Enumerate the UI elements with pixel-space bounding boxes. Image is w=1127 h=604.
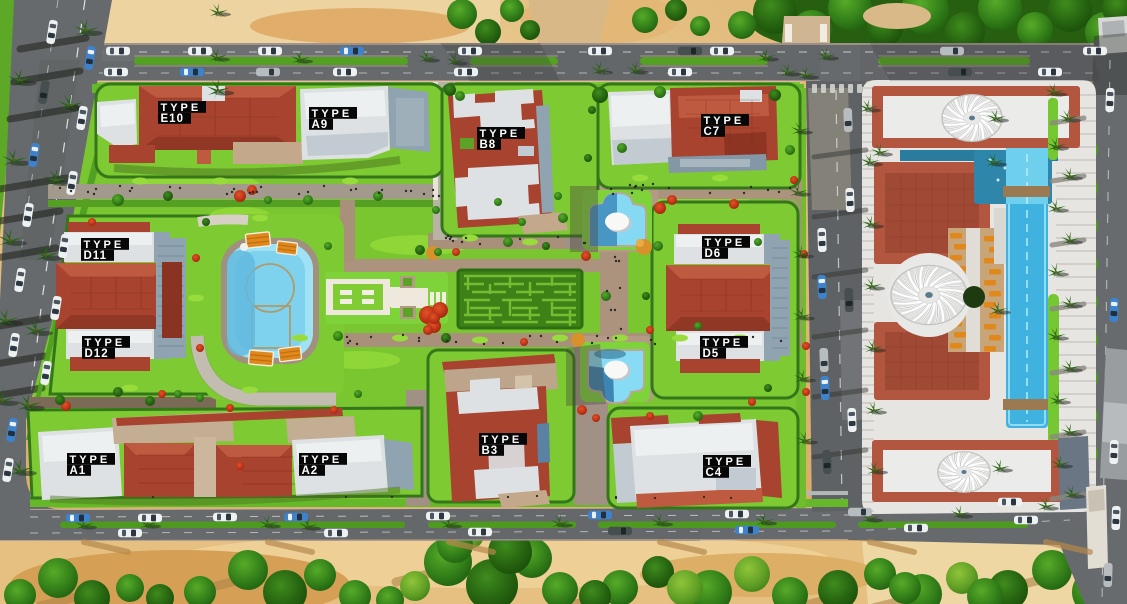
svg-text:A1: A1	[70, 465, 87, 477]
svg-text:D6: D6	[705, 248, 722, 260]
svg-text:TYPE: TYPE	[84, 239, 125, 251]
svg-text:TYPE: TYPE	[703, 337, 744, 349]
svg-text:TYPE: TYPE	[70, 454, 111, 466]
svg-text:TYPE: TYPE	[312, 108, 353, 120]
svg-text:TYPE: TYPE	[85, 337, 126, 349]
svg-text:D11: D11	[84, 250, 107, 262]
svg-text:C4: C4	[706, 467, 723, 479]
svg-text:B8: B8	[480, 139, 497, 151]
svg-text:E10: E10	[161, 113, 184, 125]
svg-text:TYPE: TYPE	[302, 454, 343, 466]
svg-text:D12: D12	[85, 348, 109, 360]
svg-text:TYPE: TYPE	[480, 128, 521, 140]
svg-text:TYPE: TYPE	[705, 237, 746, 249]
svg-text:D5: D5	[703, 348, 720, 360]
svg-text:C7: C7	[704, 126, 721, 138]
svg-text:TYPE: TYPE	[161, 102, 202, 114]
svg-text:TYPE: TYPE	[706, 456, 747, 468]
svg-text:TYPE: TYPE	[482, 434, 523, 446]
svg-text:TYPE: TYPE	[704, 115, 745, 127]
svg-text:A9: A9	[312, 119, 329, 131]
svg-text:B3: B3	[482, 445, 499, 457]
svg-text:A2: A2	[302, 465, 319, 477]
